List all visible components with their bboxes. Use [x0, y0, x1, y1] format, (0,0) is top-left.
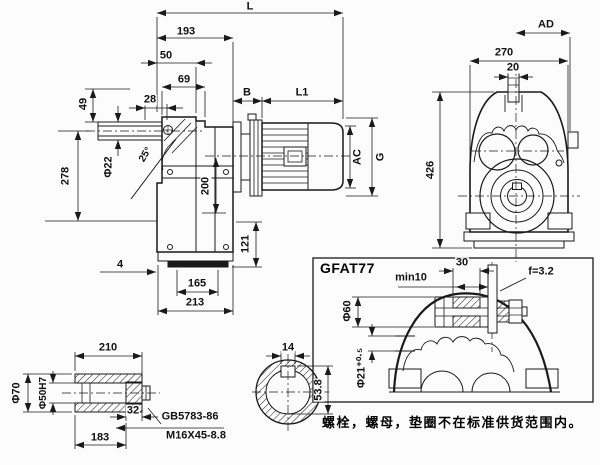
bolt-head [509, 300, 522, 323]
dim-phi21: Φ21⁺⁰·⁵ [357, 347, 368, 389]
dim-193: 193 [176, 27, 196, 38]
dim-14: 14 [281, 343, 295, 354]
mount-lug-right [548, 213, 572, 229]
top-clamp-bolt [508, 70, 519, 102]
mount-lug-left [466, 213, 490, 229]
motor-adapter [233, 114, 262, 196]
note-text: 螺栓，螺母，垫圈不在标准供货范围内。 [322, 416, 583, 429]
dim-32: 32 [126, 406, 140, 417]
dim-210: 210 [98, 343, 118, 354]
dim-426: 426 [426, 160, 437, 180]
dim-20: 20 [506, 63, 520, 74]
dim-phi50H7: Φ50H7 [39, 376, 49, 410]
dim-121: 121 [241, 234, 252, 254]
dim-min10: min10 [394, 273, 428, 284]
label-bolt-spec: M16X45-8.8 [165, 431, 227, 442]
label-gb-standard: GB5783-86 [161, 412, 220, 423]
dim-30: 30 [455, 258, 469, 269]
dim-53-8: 53.8 [314, 378, 325, 401]
motor-body [205, 123, 352, 190]
dim-AC: AC [353, 148, 364, 166]
dim-50: 50 [159, 51, 173, 62]
dim-183: 183 [90, 433, 110, 444]
dim-phi70: Φ70 [12, 381, 23, 404]
housing-outline [470, 92, 568, 232]
dim-200: 200 [201, 176, 212, 196]
dim-B: B [242, 88, 252, 99]
dim-L1: L1 [295, 88, 310, 99]
dim-28: 28 [143, 95, 157, 106]
dim-L: L [246, 2, 255, 13]
dim-69: 69 [177, 75, 191, 86]
dim-278: 278 [61, 166, 72, 186]
torque-plate [488, 265, 497, 333]
dim-4: 4 [116, 260, 124, 271]
dim-f3-2: f=3.2 [527, 267, 554, 278]
dim-phi60: Φ60 [343, 299, 354, 322]
dim-phi22: Φ22 [104, 155, 115, 178]
dim-165: 165 [187, 279, 207, 290]
dim-G: G [376, 152, 387, 163]
dim-213: 213 [185, 298, 205, 309]
detail-title: GFAT77 [318, 261, 377, 275]
dim-AD: AD [537, 20, 555, 31]
drawing-sheet: L 193 50 69 28 B L1 49 Φ22 25° 278 200 1… [0, 0, 600, 465]
dim-270: 270 [494, 48, 514, 59]
dim-49: 49 [79, 97, 90, 111]
dome-scallop [403, 337, 514, 372]
gear-bore-right [518, 135, 548, 165]
